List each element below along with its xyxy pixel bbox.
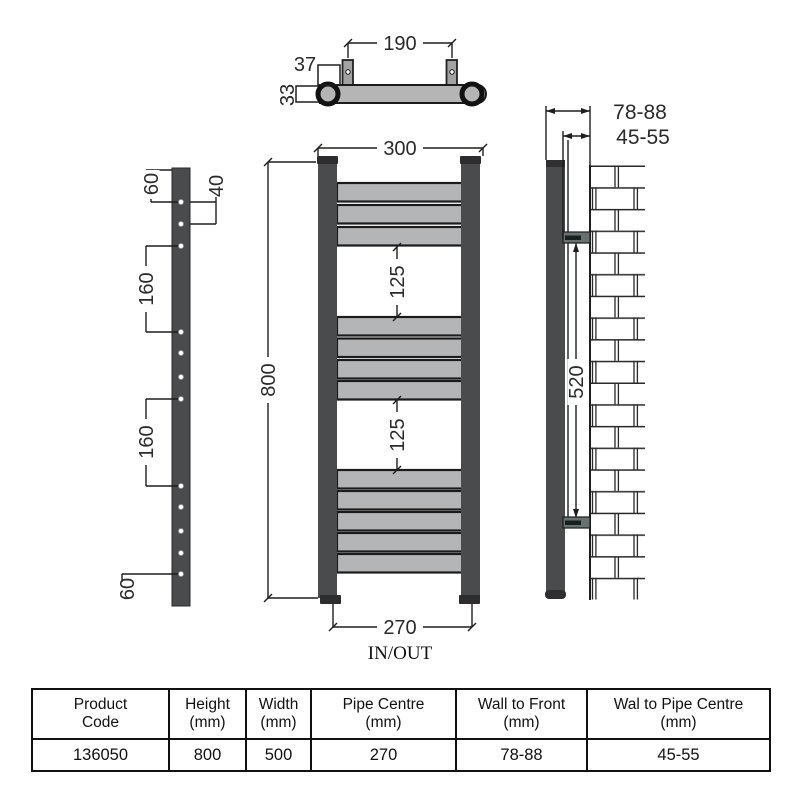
bracket-screw-hole (450, 70, 454, 74)
rung (337, 227, 463, 246)
rung (337, 491, 463, 510)
rung (337, 533, 463, 552)
dim-40: 40 (190, 175, 228, 224)
header-line: Height (170, 696, 245, 714)
dim-270: 270 (329, 604, 476, 639)
value-wall-to-pipe-centre: 45-55 (587, 739, 770, 771)
header-height: Height (mm) (169, 689, 246, 739)
rung (337, 183, 463, 202)
dim-37: 37 (294, 54, 340, 85)
rung-group-middle (337, 317, 463, 400)
dim-270-label: 270 (383, 617, 416, 639)
dim-520: 520 (566, 243, 588, 518)
front-view: 300 800 125 125 (258, 138, 487, 664)
rung (337, 554, 463, 573)
rung (337, 339, 463, 358)
header-line: Wall to Front (457, 696, 586, 714)
header-line: Wal to Pipe Centre (588, 696, 769, 714)
spec-table-value-row: 136050 800 500 270 78-88 45-55 (32, 739, 770, 771)
tube-cap (460, 156, 481, 164)
spec-table: Product Code Height (mm) Width (mm) Pipe… (31, 688, 771, 772)
technical-diagram: 190 37 33 60 40 (0, 0, 800, 686)
header-line: Product (33, 696, 168, 714)
header-line: Width (247, 696, 310, 714)
header-line: Code (33, 714, 168, 732)
header-line: (mm) (170, 714, 245, 732)
tube-cross-section-left (318, 84, 338, 104)
dim-125-upper-label: 125 (387, 265, 409, 298)
rail-top-cap (546, 160, 565, 167)
wall-side-view: 520 78-88 45-55 (545, 101, 670, 600)
dim-125-lower: 125 (387, 396, 409, 474)
header-product-code: Product Code (32, 689, 169, 739)
pipe-connection-right (459, 595, 480, 604)
dim-520-label: 520 (566, 365, 588, 398)
rung (337, 470, 463, 489)
header-line: (mm) (457, 714, 586, 732)
dim-37-label: 37 (294, 54, 316, 76)
header-wall-to-front: Wall to Front (mm) (456, 689, 587, 739)
vertical-tube-left (318, 162, 337, 598)
dim-45-55-label: 45-55 (616, 126, 670, 149)
dim-125-upper: 125 (387, 243, 409, 321)
value-wall-to-front: 78-88 (456, 739, 587, 771)
rung (337, 512, 463, 531)
header-width: Width (mm) (246, 689, 311, 739)
rail-side-profile (546, 160, 565, 598)
header-pipe-centre: Pipe Centre (mm) (311, 689, 456, 739)
rail-bottom-cap (545, 590, 566, 599)
dim-800-label: 800 (258, 363, 280, 396)
value-pipe-centre: 270 (311, 739, 456, 771)
top-view: 190 37 33 (277, 33, 486, 106)
dim-60-top-label: 60 (141, 173, 163, 195)
inout-label: IN/OUT (368, 643, 433, 664)
dim-300-label: 300 (383, 138, 416, 160)
dim-125-lower-label: 125 (387, 418, 409, 451)
towel-rail-spec-sheet: { "diagram": { "top_view": { "bracket_sp… (0, 0, 800, 800)
value-product-code: 136050 (32, 739, 169, 771)
value-height: 800 (169, 739, 246, 771)
dim-800: 800 (258, 158, 318, 602)
header-line: (mm) (588, 714, 769, 732)
dim-78-88-label: 78-88 (613, 101, 667, 124)
header-line: (mm) (312, 714, 455, 732)
dim-160-upper-label: 160 (136, 272, 158, 305)
dim-190-label: 190 (383, 33, 416, 55)
rung (337, 317, 463, 336)
rung (337, 360, 463, 379)
tube-cap (317, 156, 338, 164)
bracket-rail-bar (172, 168, 190, 606)
header-line: (mm) (247, 714, 310, 732)
tube-cross-section-right (462, 84, 482, 104)
header-line: Pipe Centre (312, 696, 455, 714)
rung-group-top (337, 183, 463, 246)
pipe-connection-left (320, 595, 341, 604)
value-width: 500 (246, 739, 311, 771)
header-wall-to-pipe-centre: Wal to Pipe Centre (mm) (587, 689, 770, 739)
wall-bracket-bottom (563, 517, 590, 528)
dim-160-lower-label: 160 (136, 425, 158, 458)
mounting-bracket-side-view: 60 40 160 160 60 (117, 168, 228, 606)
spec-table-header-row: Product Code Height (mm) Width (mm) Pipe… (32, 689, 770, 739)
dim-60-bottom: 60 (117, 574, 178, 600)
dim-40-label: 40 (206, 175, 228, 197)
dim-190: 190 (344, 33, 456, 58)
rung-group-bottom (337, 470, 463, 573)
dim-33-label: 33 (277, 84, 299, 106)
rung (337, 205, 463, 224)
wall-bracket-top (563, 232, 590, 243)
brick-wall (590, 166, 645, 600)
vertical-tube-right (461, 162, 480, 598)
bracket-screw-hole (346, 70, 350, 74)
dim-60-bottom-label: 60 (117, 578, 139, 600)
